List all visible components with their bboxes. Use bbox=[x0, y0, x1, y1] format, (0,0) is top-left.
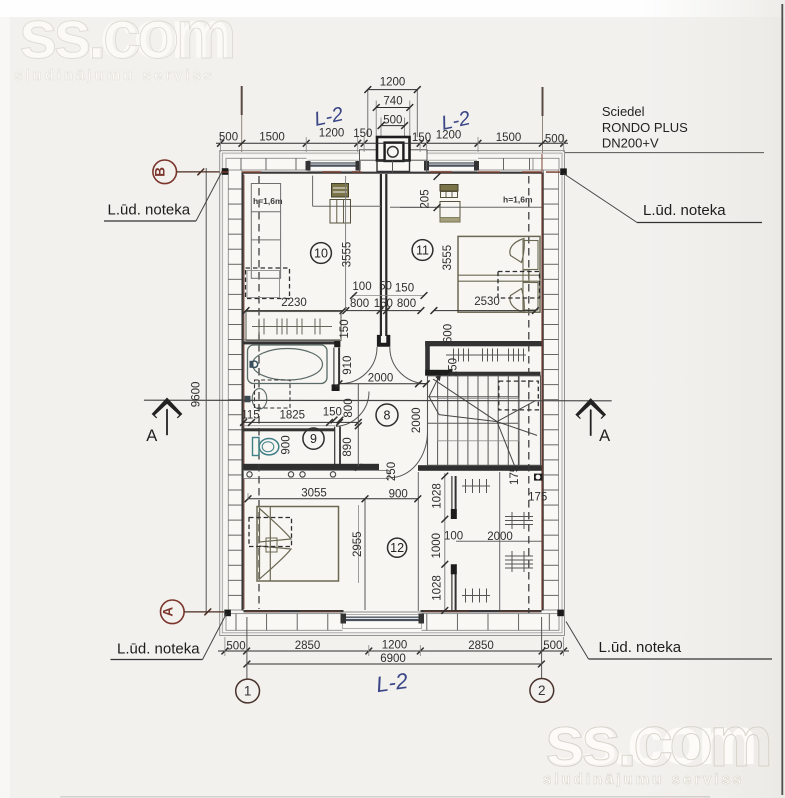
svg-text:L.ūd. noteka: L.ūd. noteka bbox=[108, 202, 191, 219]
svg-text:sludinājumu serviss: sludinājumu serviss bbox=[14, 67, 215, 84]
svg-text:2: 2 bbox=[538, 683, 546, 698]
svg-text:L-2: L-2 bbox=[374, 668, 409, 697]
svg-text:740: 740 bbox=[383, 96, 402, 108]
svg-text:150: 150 bbox=[447, 358, 459, 377]
svg-text:250: 250 bbox=[386, 462, 398, 481]
svg-text:2230: 2230 bbox=[281, 297, 307, 309]
svg-text:115: 115 bbox=[241, 409, 259, 421]
svg-text:L.ūd. noteka: L.ūd. noteka bbox=[643, 202, 726, 219]
svg-text:500: 500 bbox=[226, 640, 245, 652]
svg-text:1825: 1825 bbox=[280, 409, 306, 421]
svg-text:11: 11 bbox=[416, 243, 429, 257]
svg-text:A: A bbox=[160, 607, 175, 617]
svg-text:3555: 3555 bbox=[342, 242, 354, 268]
svg-text:sludinājumu serviss: sludinājumu serviss bbox=[543, 771, 744, 788]
svg-text:500: 500 bbox=[219, 131, 238, 143]
svg-text:800: 800 bbox=[343, 398, 355, 417]
svg-text:B: B bbox=[153, 167, 168, 177]
svg-text:150: 150 bbox=[374, 298, 393, 310]
svg-text:A: A bbox=[599, 427, 610, 445]
svg-text:150: 150 bbox=[395, 283, 414, 295]
svg-text:500: 500 bbox=[383, 115, 402, 127]
svg-text:1200: 1200 bbox=[382, 639, 408, 651]
svg-text:150: 150 bbox=[339, 319, 351, 338]
svg-text:ss.com: ss.com bbox=[19, 0, 233, 73]
svg-text:1500: 1500 bbox=[496, 132, 522, 144]
svg-text:1500: 1500 bbox=[259, 132, 285, 144]
svg-text:12: 12 bbox=[390, 541, 404, 555]
svg-text:2850: 2850 bbox=[468, 640, 494, 652]
svg-text:2850: 2850 bbox=[295, 640, 321, 652]
svg-text:8: 8 bbox=[384, 408, 391, 422]
svg-text:10: 10 bbox=[314, 246, 328, 260]
svg-text:600: 600 bbox=[443, 324, 455, 343]
svg-text:9: 9 bbox=[310, 432, 317, 446]
svg-text:DN200+V: DN200+V bbox=[602, 135, 659, 150]
svg-text:A: A bbox=[146, 427, 157, 445]
svg-text:900: 900 bbox=[389, 489, 408, 501]
svg-text:1028: 1028 bbox=[432, 483, 444, 509]
svg-text:9600: 9600 bbox=[191, 382, 203, 408]
svg-text:150: 150 bbox=[412, 132, 431, 144]
svg-text:2530: 2530 bbox=[474, 296, 500, 308]
svg-text:175: 175 bbox=[509, 466, 521, 485]
svg-text:205: 205 bbox=[420, 189, 432, 208]
svg-text:150: 150 bbox=[323, 407, 342, 419]
svg-text:h=1,6m: h=1,6m bbox=[253, 196, 283, 206]
svg-text:175: 175 bbox=[528, 491, 547, 503]
svg-text:3055: 3055 bbox=[301, 488, 327, 500]
svg-text:910: 910 bbox=[342, 356, 354, 375]
svg-text:1000: 1000 bbox=[431, 533, 443, 559]
svg-text:2000: 2000 bbox=[411, 408, 423, 434]
svg-text:L.ūd. noteka: L.ūd. noteka bbox=[117, 641, 200, 658]
svg-text:2955: 2955 bbox=[352, 531, 364, 557]
svg-text:L.ūd. noteka: L.ūd. noteka bbox=[599, 639, 682, 656]
svg-text:50: 50 bbox=[379, 281, 392, 293]
svg-text:6900: 6900 bbox=[380, 653, 406, 665]
svg-text:150: 150 bbox=[353, 128, 372, 140]
svg-text:100: 100 bbox=[352, 281, 371, 293]
svg-text:500: 500 bbox=[545, 134, 564, 146]
svg-text:890: 890 bbox=[342, 437, 354, 456]
svg-text:900: 900 bbox=[281, 435, 293, 454]
svg-text:RONDO PLUS: RONDO PLUS bbox=[602, 120, 688, 135]
svg-text:ss.com: ss.com bbox=[545, 702, 769, 782]
svg-text:2000: 2000 bbox=[487, 531, 513, 543]
svg-text:800: 800 bbox=[350, 298, 369, 310]
svg-text:3555: 3555 bbox=[442, 245, 454, 271]
svg-text:h=1,6m: h=1,6m bbox=[503, 195, 533, 205]
svg-text:800: 800 bbox=[397, 298, 416, 310]
svg-text:100: 100 bbox=[444, 531, 463, 543]
svg-text:1: 1 bbox=[244, 684, 252, 699]
svg-text:Sciedel: Sciedel bbox=[602, 104, 645, 119]
svg-text:1028: 1028 bbox=[432, 575, 444, 601]
svg-text:500: 500 bbox=[543, 640, 562, 652]
svg-text:1200: 1200 bbox=[380, 77, 406, 89]
svg-text:2000: 2000 bbox=[368, 372, 394, 384]
